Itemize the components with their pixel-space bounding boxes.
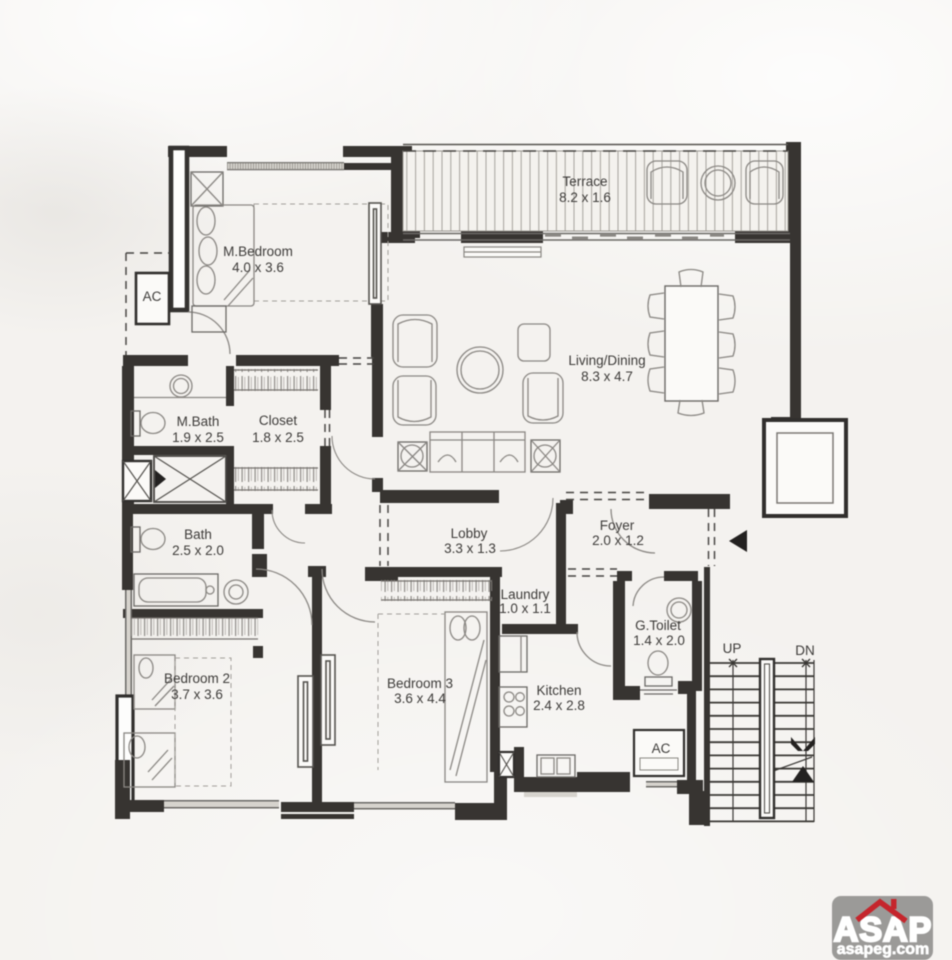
svg-text:M.Bedroom: M.Bedroom <box>223 244 293 259</box>
svg-text:8.3 x 4.7: 8.3 x 4.7 <box>581 369 633 384</box>
svg-text:3.3 x 1.3: 3.3 x 1.3 <box>444 541 496 556</box>
svg-text:3.7 x 3.6: 3.7 x 3.6 <box>171 687 223 702</box>
svg-text:1.8 x 2.5: 1.8 x 2.5 <box>252 430 304 445</box>
svg-text:2.5 x 2.0: 2.5 x 2.0 <box>172 543 224 558</box>
svg-text:G.Toilet: G.Toilet <box>635 618 681 633</box>
svg-text:Living/Dining: Living/Dining <box>568 353 645 368</box>
svg-text:Bedroom 2: Bedroom 2 <box>164 671 230 686</box>
svg-text:Bath: Bath <box>184 527 212 542</box>
svg-text:3.6 x 4.4: 3.6 x 4.4 <box>394 691 446 706</box>
svg-text:Bedroom 3: Bedroom 3 <box>387 676 453 691</box>
svg-text:AC: AC <box>143 289 162 304</box>
svg-text:Kitchen: Kitchen <box>536 683 581 698</box>
svg-text:AC: AC <box>652 741 671 756</box>
svg-text:asapeg.com: asapeg.com <box>837 941 929 958</box>
svg-text:UP: UP <box>723 641 742 656</box>
svg-text:Lobby: Lobby <box>451 526 488 541</box>
svg-text:4.0 x 3.6: 4.0 x 3.6 <box>232 260 284 275</box>
svg-text:1.4 x 2.0: 1.4 x 2.0 <box>633 633 685 648</box>
svg-text:Laundry: Laundry <box>501 587 550 602</box>
svg-text:Terrace: Terrace <box>562 174 607 189</box>
svg-text:Foyer: Foyer <box>600 518 635 533</box>
svg-text:DN: DN <box>795 643 815 658</box>
svg-text:Closet: Closet <box>259 413 298 428</box>
svg-text:1.9 x 2.5: 1.9 x 2.5 <box>172 430 224 445</box>
svg-text:2.0 x 1.2: 2.0 x 1.2 <box>592 533 644 548</box>
svg-text:8.2 x 1.6: 8.2 x 1.6 <box>559 190 611 205</box>
svg-text:1.0 x 1.1: 1.0 x 1.1 <box>499 601 551 616</box>
svg-text:2.4 x 2.8: 2.4 x 2.8 <box>533 698 585 713</box>
svg-text:M.Bath: M.Bath <box>177 414 220 429</box>
